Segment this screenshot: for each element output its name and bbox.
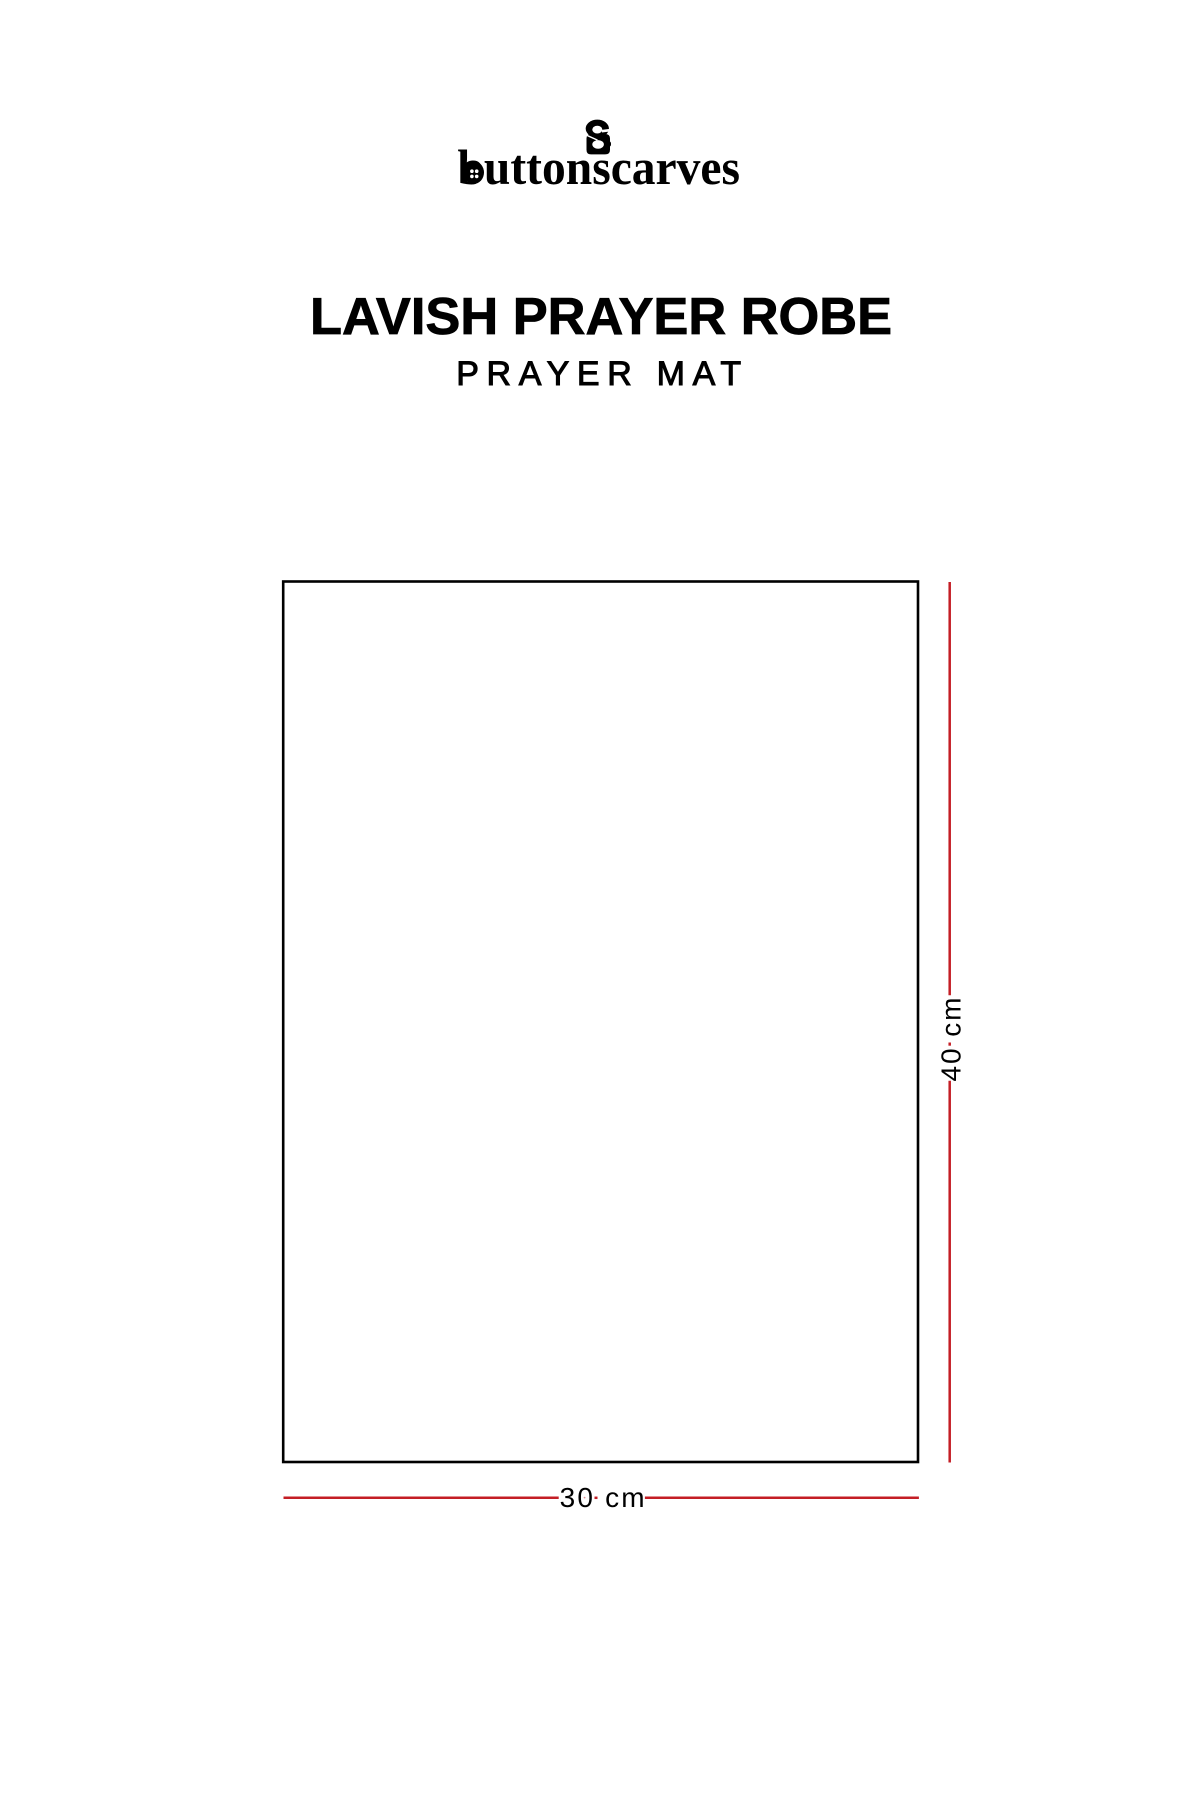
svg-text:40 cm: 40 cm xyxy=(935,998,966,1082)
svg-text:30 cm: 30 cm xyxy=(560,1482,645,1513)
svg-text:LAVISH PRAYER ROBE: LAVISH PRAYER ROBE xyxy=(310,288,892,346)
svg-text:PRAYER MAT: PRAYER MAT xyxy=(456,355,741,393)
